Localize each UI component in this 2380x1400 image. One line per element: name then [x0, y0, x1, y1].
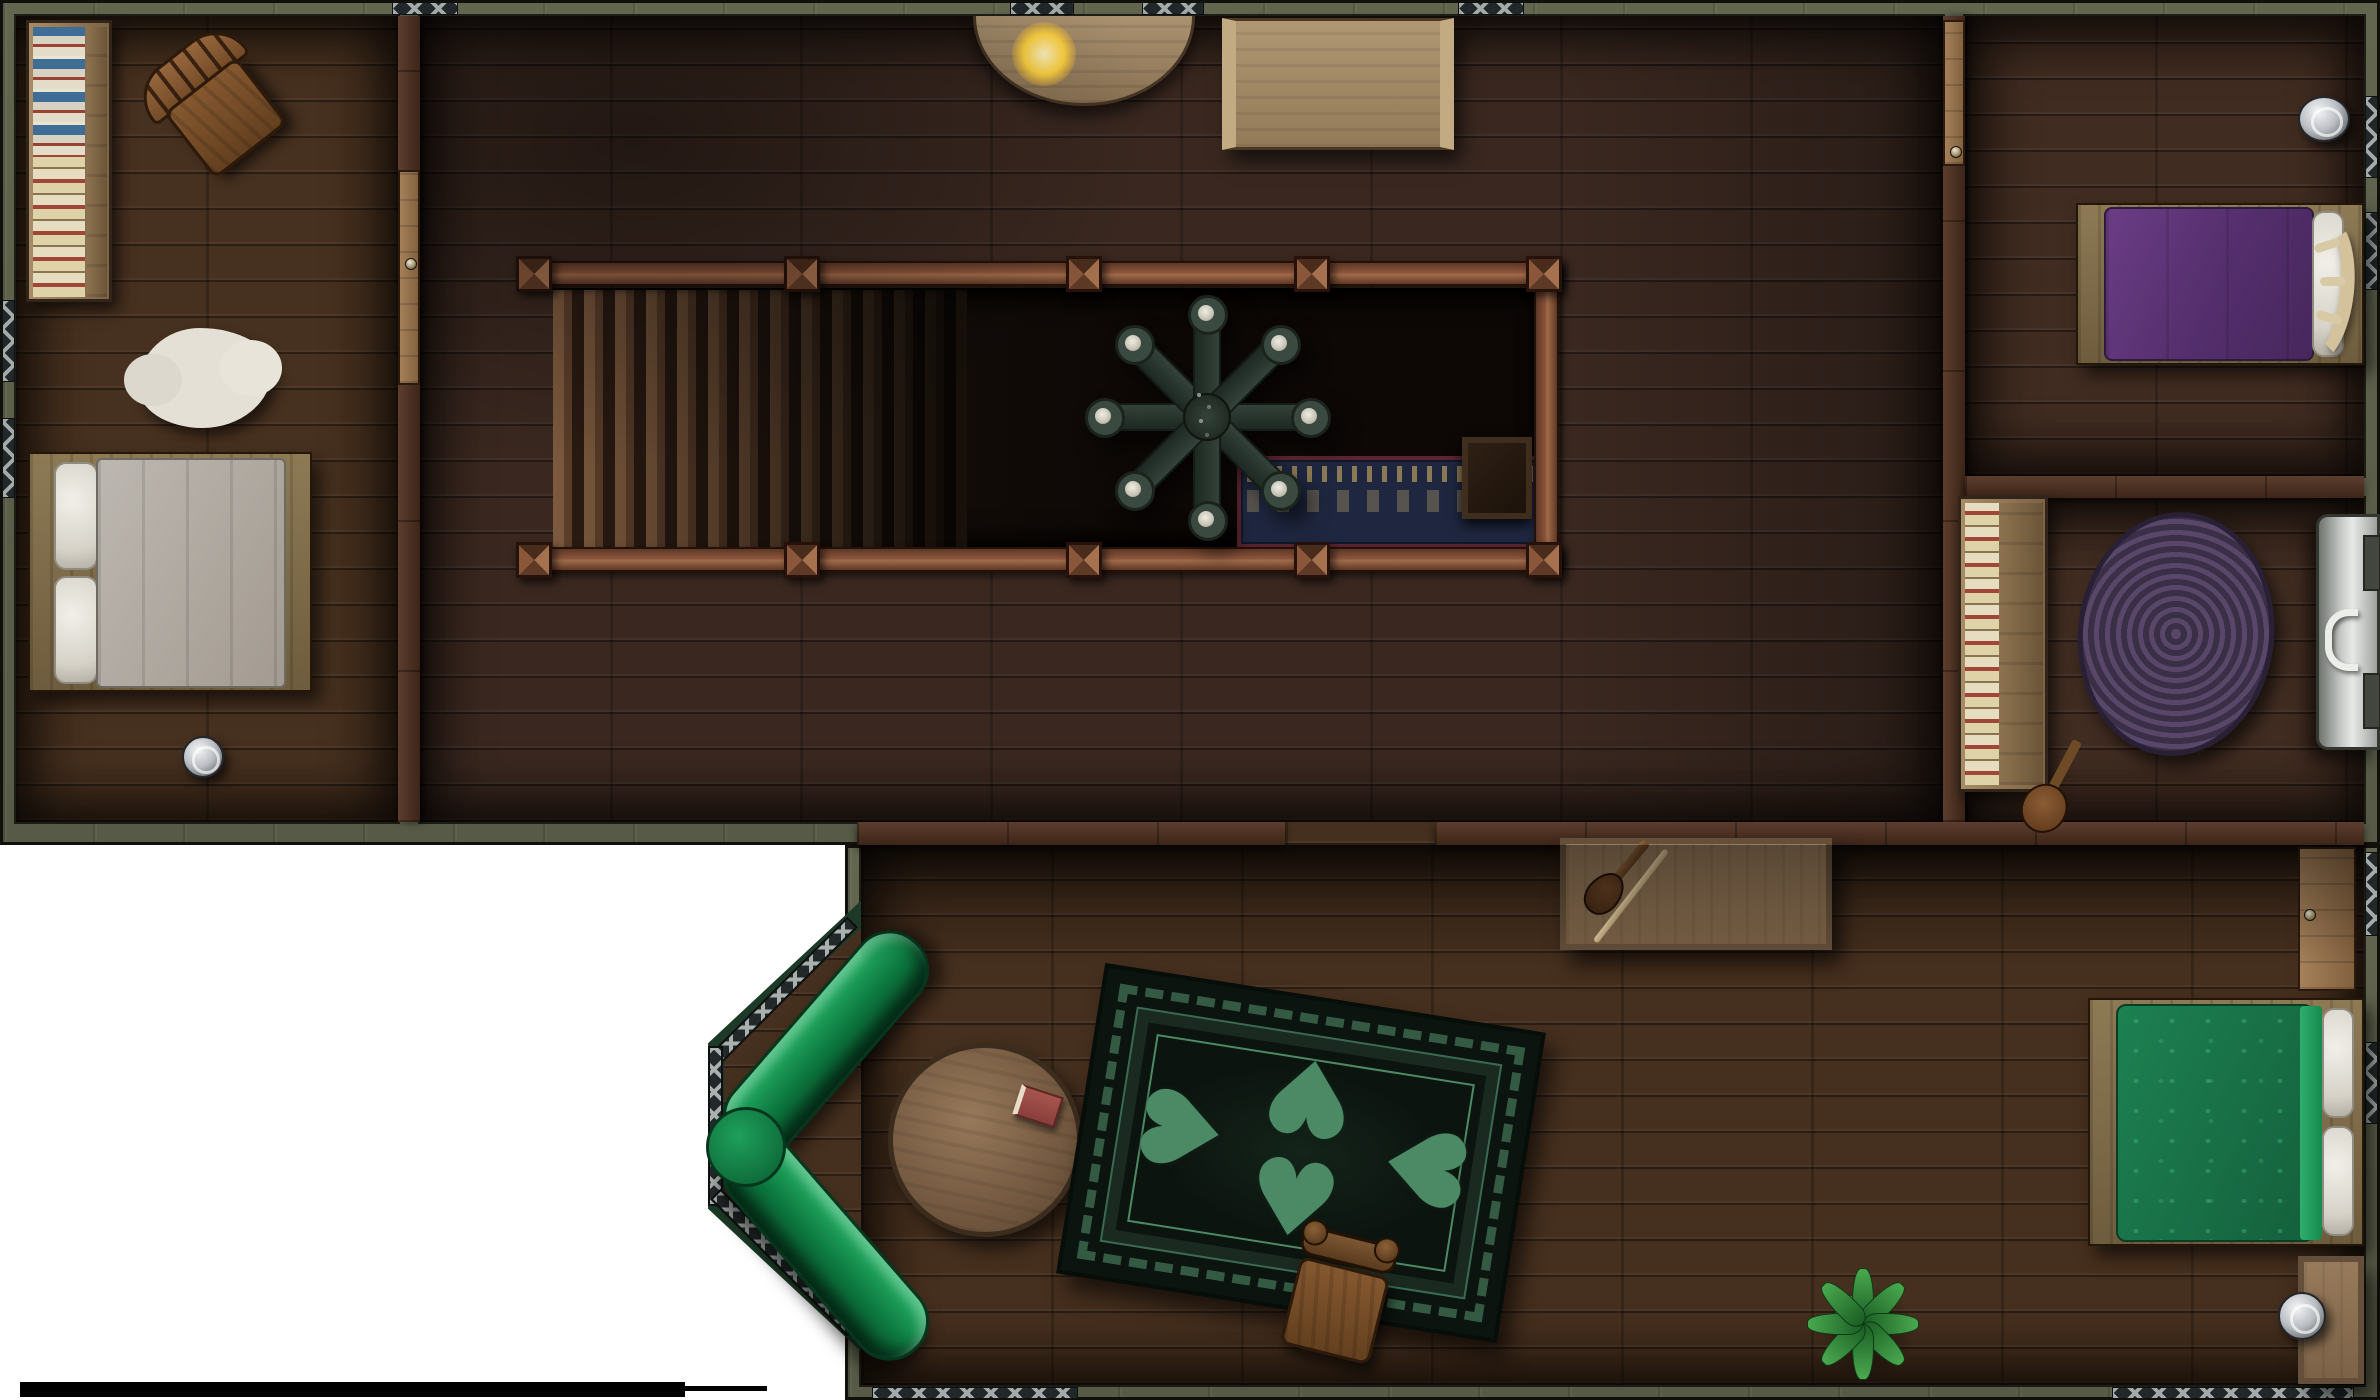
wall-west-bedroom — [398, 16, 420, 822]
side-table[interactable] — [1222, 18, 1454, 150]
violin-sideboard[interactable] — [1560, 838, 1832, 950]
pillow — [54, 576, 98, 684]
railing-south — [518, 547, 1562, 572]
candle-icon — [1115, 325, 1155, 365]
railing-post — [1526, 542, 1562, 578]
book-spines — [33, 27, 85, 155]
pillow — [54, 462, 98, 570]
door-west-bedroom[interactable] — [398, 170, 420, 385]
railing-east — [1534, 261, 1559, 572]
candle-icon — [1188, 501, 1228, 541]
railing-post — [1526, 256, 1562, 292]
door-knob-icon — [1950, 146, 1962, 158]
window-icon — [2365, 1042, 2378, 1124]
candlestick-icon[interactable] — [2278, 1292, 2326, 1340]
antler-tine — [2320, 277, 2346, 286]
window-icon — [392, 2, 458, 15]
door-knob-icon — [405, 258, 417, 270]
blanket — [2104, 207, 2314, 361]
metal-stove[interactable] — [2316, 514, 2380, 750]
railing-post — [1066, 256, 1102, 292]
battle-map: ♥ ♥ ♥ ♥ — [0, 0, 2380, 1400]
doorway-common-room[interactable] — [1285, 822, 1435, 845]
violin — [1564, 822, 1715, 970]
rug-heart-motif: ♥ — [1124, 1075, 1241, 1183]
door-knob-icon — [2304, 909, 2316, 921]
window-icon — [2, 300, 15, 382]
door-northeast-bedroom[interactable] — [1943, 20, 1965, 166]
bookshelf-east[interactable] — [1958, 496, 2048, 792]
candle-icon — [1261, 325, 1301, 365]
chandelier[interactable] — [1085, 295, 1325, 535]
railing-post — [784, 256, 820, 292]
window-icon — [2112, 1387, 2354, 1399]
window-icon — [2365, 852, 2378, 936]
window-icon — [1458, 2, 1524, 15]
round-table[interactable] — [888, 1043, 1082, 1237]
blanket — [96, 458, 286, 688]
railing-post — [1294, 542, 1330, 578]
pillow — [2322, 1126, 2354, 1236]
candle-icon — [1085, 398, 1125, 438]
window-icon — [872, 1387, 1078, 1399]
stove-mount — [2363, 535, 2380, 591]
blanket-fold — [2300, 1006, 2322, 1240]
bookshelf-west[interactable] — [26, 20, 112, 302]
wall-northeast-bedroom-south — [1965, 476, 2364, 498]
candle-icon — [1188, 295, 1228, 335]
window-icon — [1010, 2, 1074, 15]
railing-post — [784, 542, 820, 578]
window-icon — [2, 418, 15, 498]
railing-north — [518, 261, 1562, 286]
book-spines — [1965, 503, 1999, 785]
blanket — [2116, 1004, 2314, 1242]
railing-post — [516, 256, 552, 292]
chain-icon — [1189, 387, 1221, 443]
window-icon — [2365, 212, 2378, 290]
shelf-panel — [87, 27, 107, 297]
bed-purple[interactable] — [2076, 203, 2364, 365]
scale-bar-tail — [685, 1386, 767, 1391]
stairwell-opening[interactable] — [553, 288, 1545, 550]
railing-post — [1066, 542, 1102, 578]
rug-heart-motif: ♥ — [1365, 1113, 1482, 1221]
scale-bar — [20, 1382, 685, 1397]
window-icon — [1142, 2, 1204, 15]
candle-icon — [1261, 471, 1301, 511]
door-east-room-open-leaf[interactable] — [2298, 847, 2356, 991]
potted-plant[interactable] — [1800, 1262, 1925, 1387]
chair-seat — [1279, 1256, 1390, 1366]
railing-post — [516, 542, 552, 578]
couch-corner — [706, 1107, 786, 1187]
candle-icon — [1115, 471, 1155, 511]
book-spines — [33, 155, 85, 297]
candlestick-icon[interactable] — [182, 736, 224, 778]
lit-candle-icon — [1012, 22, 1076, 86]
lower-floor-crate — [1462, 437, 1532, 519]
candle-icon — [1291, 398, 1331, 438]
window-icon — [2365, 96, 2378, 178]
pillow — [2322, 1008, 2354, 1118]
stove-mount — [2363, 673, 2380, 729]
railing-post — [1294, 256, 1330, 292]
bed-green[interactable] — [2088, 998, 2364, 1246]
staircase-down[interactable] — [553, 290, 967, 548]
shelf-panel — [1999, 503, 2043, 785]
lantern-icon[interactable] — [2298, 96, 2350, 142]
wall-common-room-north-west — [857, 822, 1285, 845]
bed-white[interactable] — [28, 452, 312, 692]
